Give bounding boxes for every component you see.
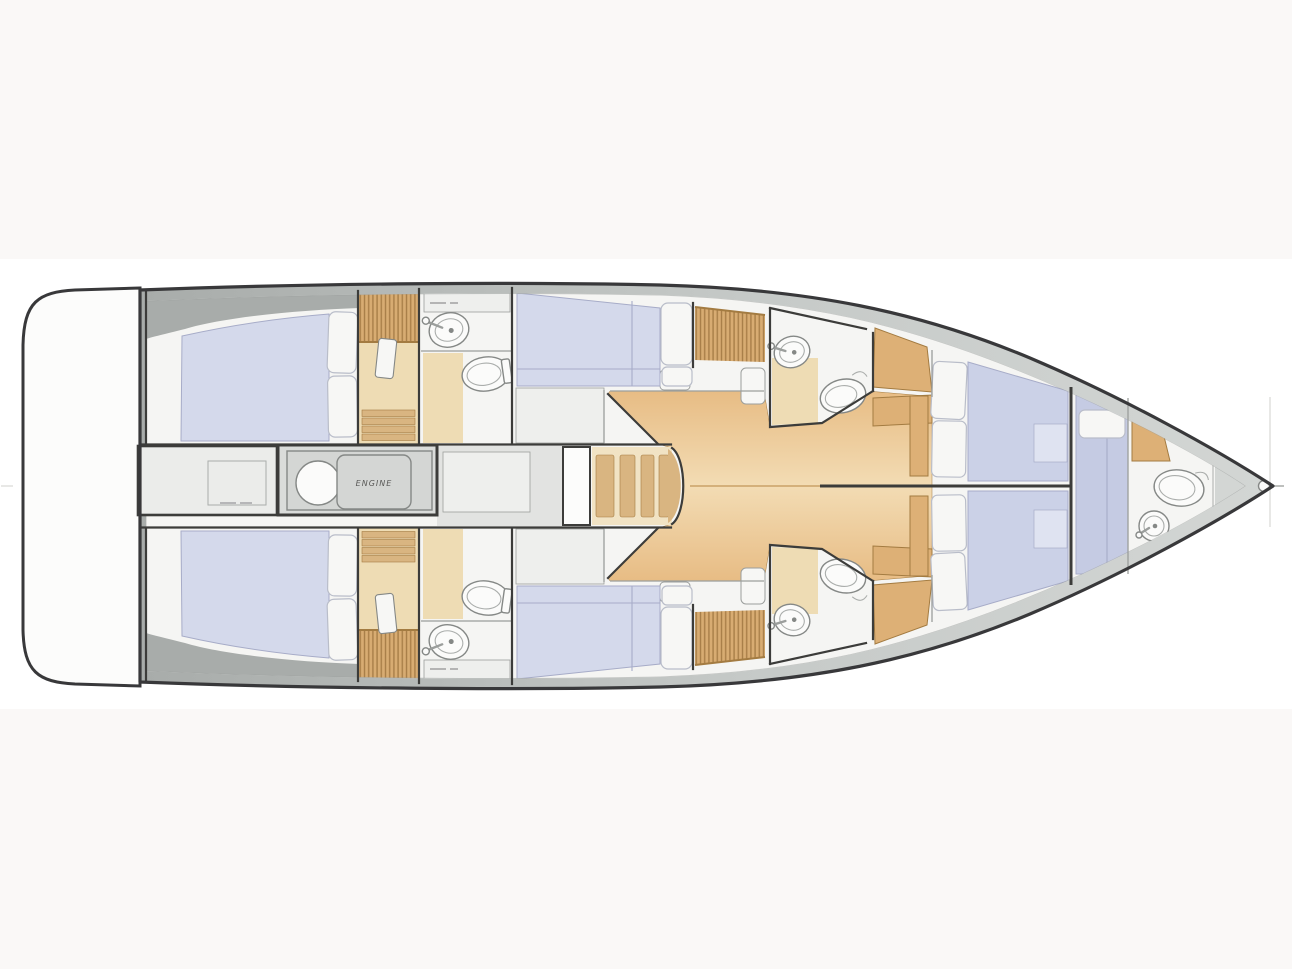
- dressing-area: [516, 529, 604, 584]
- pillow: [327, 535, 357, 596]
- cabin-door: [375, 593, 397, 634]
- bathroom-floor-mat: [772, 358, 818, 425]
- pillow: [932, 495, 967, 552]
- salon-cushion-starboard: [741, 568, 765, 604]
- page: ENGINE: [0, 0, 1292, 969]
- bathroom-floor-mat: [772, 547, 818, 614]
- swim-platform: [23, 288, 140, 686]
- pillow: [932, 421, 967, 478]
- bed-mattress: [517, 293, 660, 386]
- bed-mattress: [517, 586, 660, 679]
- aft-cabin-starboard: [181, 531, 358, 660]
- corridor-aft-panel: [443, 452, 530, 512]
- bed-mattress: [181, 314, 329, 441]
- pillow: [327, 376, 357, 437]
- pillow: [662, 586, 692, 605]
- cabin-door: [375, 338, 397, 379]
- pillow: [327, 312, 358, 374]
- bow-fitting: [1259, 397, 1285, 527]
- engine-flywheel-icon: [296, 461, 340, 505]
- salon-cushion-port: [741, 368, 765, 404]
- companionway-landing: [563, 447, 590, 525]
- engine-label: ENGINE: [356, 479, 393, 488]
- pillow: [661, 607, 692, 669]
- engine-room: ENGINE: [278, 445, 437, 515]
- aft-companionway-port: [359, 289, 419, 444]
- bed-mattress: [181, 531, 329, 658]
- aft-storage-locker: [138, 446, 277, 515]
- pillow: [931, 361, 968, 420]
- slatted-hatch-mid-port: [695, 307, 765, 362]
- bow-cabin: [1076, 392, 1128, 574]
- pillow: [327, 598, 358, 660]
- slatted-hatch: [359, 289, 419, 342]
- mattress-throw: [1034, 424, 1067, 462]
- bathroom-floor: [423, 353, 463, 443]
- pillow: [661, 303, 692, 365]
- desk-side: [910, 496, 928, 576]
- aft-cabin-port: [181, 312, 358, 441]
- slatted-hatch: [359, 629, 419, 683]
- desk-side: [910, 396, 928, 476]
- main-companionway: [563, 447, 683, 525]
- pillow: [931, 552, 968, 611]
- aft-companionway-starboard: [359, 528, 419, 683]
- mattress-throw: [1034, 510, 1067, 548]
- slatted-hatch-mid-starboard: [695, 610, 765, 665]
- dressing-area: [516, 388, 604, 443]
- bathroom-floor: [423, 529, 463, 619]
- yacht-floor-plan: ENGINE: [0, 0, 1292, 969]
- pillow: [662, 367, 692, 386]
